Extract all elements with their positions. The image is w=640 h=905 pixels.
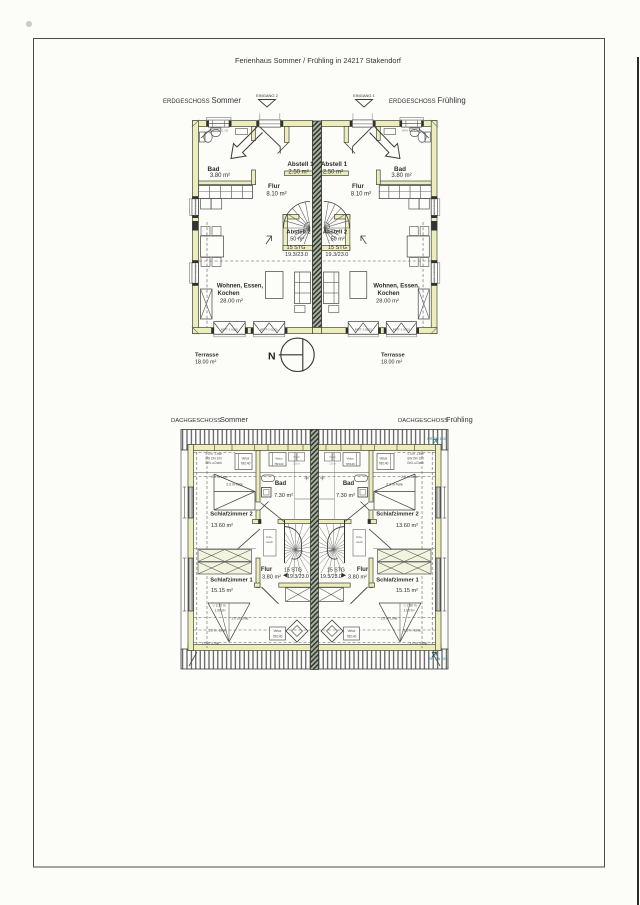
svg-text:Abstell 1: Abstell 1 [287,161,314,168]
svg-text:2.0 m-Linie: 2.0 m-Linie [401,475,418,479]
svg-text:15 STG: 15 STG [284,568,302,574]
svg-text:78/140: 78/140 [273,635,283,639]
svg-text:BRH 1.30(1.30): BRH 1.30(1.30) [402,129,422,133]
svg-text:28.00 m²: 28.00 m² [220,299,243,305]
svg-text:.50 m²: .50 m² [329,237,345,243]
svg-text:1.0 m -Linie: 1.0 m -Linie [407,452,424,456]
svg-text:Frühling: Frühling [446,415,473,424]
svg-text:EINGANG 2: EINGANG 2 [256,93,279,98]
svg-text:3.80 m²: 3.80 m² [391,173,411,179]
svg-text:2.3 m-Teile: 2.3 m-Teile [386,483,403,487]
svg-text:13.60 m²: 13.60 m² [396,523,418,529]
svg-text:15 STG: 15 STG [287,245,306,251]
svg-text:Abstell 2: Abstell 2 [286,230,310,236]
svg-text:Wohnen, Essen,: Wohnen, Essen, [373,284,420,290]
svg-text:SW DN 100: SW DN 100 [407,457,424,461]
svg-text:Velux: Velux [380,457,388,461]
svg-text:N: N [268,351,276,363]
svg-text:1.00: 1.00 [297,549,303,553]
svg-text:2.3 m-Teile: 2.3 m-Teile [226,483,243,487]
svg-text:Bad: Bad [275,481,287,487]
svg-text:Abstell 1: Abstell 1 [321,161,348,168]
svg-text:Flur: Flur [357,567,369,573]
svg-text:BR/T-1.0(20): BR/T-1.0(20) [393,328,410,332]
svg-text:▽ 2.30 m: ▽ 2.30 m [403,604,416,608]
svg-text:EINGANG 1: EINGANG 1 [353,93,376,98]
svg-text:18.00 m²: 18.00 m² [195,360,216,366]
svg-text:78/140: 78/140 [346,462,356,466]
svg-text:Flur: Flur [268,183,280,190]
svg-text:15 STG: 15 STG [327,568,345,574]
svg-text:8.10 m²: 8.10 m² [351,192,371,198]
svg-text:Schlafzimmer 1: Schlafzimmer 1 [210,578,253,584]
svg-text:78/140: 78/140 [274,462,284,466]
svg-text:1.00: 1.00 [326,549,332,553]
svg-text:Frühling: Frühling [438,96,466,105]
svg-text:18.00 m²: 18.00 m² [381,360,402,366]
svg-text:1.5 m -Linie: 1.5 m -Linie [208,629,226,633]
svg-text:Dach: Dach [329,455,336,459]
svg-text:Abstell 2: Abstell 2 [323,230,347,236]
svg-text:1.90 m²: 1.90 m² [404,609,415,613]
svg-text:1.0 m: 1.0 m [329,462,336,466]
svg-text:SW DN 100: SW DN 100 [205,457,222,461]
svg-text:BR/T-1.0(20): BR/T-1.0(20) [355,328,372,332]
svg-text:1.90 m²: 1.90 m² [215,609,226,613]
svg-text:78/140: 78/140 [379,462,389,466]
svg-text:Schlafzimmer 2: Schlafzimmer 2 [210,512,253,518]
svg-text:2.0 m-Linie: 2.0 m-Linie [381,617,398,621]
svg-text:Velux: Velux [274,629,282,633]
svg-text:Kochen: Kochen [217,291,239,297]
svg-text:Terrasse: Terrasse [195,353,220,359]
svg-text:1.0 m: 1.0 m [293,462,300,466]
svg-text:Schlafzimmer 1: Schlafzimmer 1 [376,578,419,584]
svg-text:Kochen: Kochen [377,291,399,297]
svg-text:3.80 m²: 3.80 m² [348,575,367,581]
svg-text:Velux: Velux [348,629,356,633]
svg-text:Flur: Flur [352,183,364,190]
svg-text:1.0 m -Linie: 1.0 m -Linie [205,452,222,456]
svg-text:Grill-u-Dach: Grill-u-Dach [205,461,222,465]
svg-text:3.80 m²: 3.80 m² [210,173,230,179]
svg-text:1.0 m -Linie: 1.0 m -Linie [202,642,220,646]
svg-text:BR/T-1.0(20): BR/T-1.0(20) [260,328,277,332]
svg-text:Bad: Bad [343,481,355,487]
svg-text:19.3/23.0: 19.3/23.0 [287,574,309,580]
svg-text:ERDGESCHOSS: ERDGESCHOSS [389,99,436,105]
svg-text:Grill-u-Dach: Grill-u-Dach [407,461,424,465]
svg-text:▽ 2.30 m: ▽ 2.30 m [212,604,225,608]
svg-text:stock: stock [356,540,363,544]
svg-text:78/140: 78/140 [347,635,357,639]
svg-text:ERDGESCHOSS: ERDGESCHOSS [163,99,210,105]
svg-text:Dach: Dach [293,455,300,459]
svg-text:Wohnen, Essen,: Wohnen, Essen, [217,284,264,290]
svg-text:Knie-: Knie- [266,535,273,539]
svg-text:.50 m²: .50 m² [289,237,305,243]
svg-text:19.3/23.0: 19.3/23.0 [285,252,308,258]
svg-text:7.30 m²: 7.30 m² [274,493,293,499]
svg-text:BR/T-1.0(20): BR/T-1.0(20) [221,328,238,332]
svg-text:1.5 m -Linie: 1.5 m -Linie [403,629,421,633]
svg-text:stock: stock [266,540,273,544]
svg-text:1.0 m -Linie: 1.0 m -Linie [410,642,428,646]
svg-text:Sommer: Sommer [212,96,242,105]
svg-text:2.50 m²: 2.50 m² [288,170,308,176]
svg-text:RR DN 100: RR DN 100 [429,657,447,661]
svg-text:Velux: Velux [275,457,283,461]
svg-text:13.60 m²: 13.60 m² [211,523,233,529]
svg-text:Knie-: Knie- [356,535,363,539]
svg-text:8.10 m²: 8.10 m² [266,192,286,198]
svg-text:DACHGESCHOSS: DACHGESCHOSS [398,418,448,424]
svg-text:15 STG: 15 STG [328,245,347,251]
svg-text:Sommer: Sommer [220,415,248,424]
svg-text:DACHGESCHOSS: DACHGESCHOSS [171,418,221,424]
svg-text:Flur: Flur [261,567,273,573]
svg-text:7.30 m²: 7.30 m² [336,493,355,499]
svg-text:2.0 m-Linie: 2.0 m-Linie [211,475,228,479]
svg-text:19.3/23.0: 19.3/23.0 [325,252,348,258]
svg-text:28.00 m²: 28.00 m² [376,299,399,305]
svg-text:15.15 m²: 15.15 m² [211,588,233,594]
svg-text:Velux: Velux [347,457,355,461]
svg-text:78/140: 78/140 [241,462,251,466]
svg-text:Schlafzimmer 2: Schlafzimmer 2 [376,512,419,518]
svg-text:15.15 m²: 15.15 m² [396,588,418,594]
svg-text:19.3/23.0: 19.3/23.0 [320,574,342,580]
svg-text:2.0 m-Linie: 2.0 m-Linie [232,617,249,621]
svg-text:2.50 m²: 2.50 m² [323,170,343,176]
svg-text:Velux: Velux [242,457,250,461]
svg-text:Ferienhaus Sommer / Frühling i: Ferienhaus Sommer / Frühling in 24217 St… [235,56,402,65]
svg-text:BRH 1.30(1.30): BRH 1.30(1.30) [209,129,229,133]
svg-text:3.80 m²: 3.80 m² [262,575,281,581]
svg-text:Terrasse: Terrasse [381,353,406,359]
